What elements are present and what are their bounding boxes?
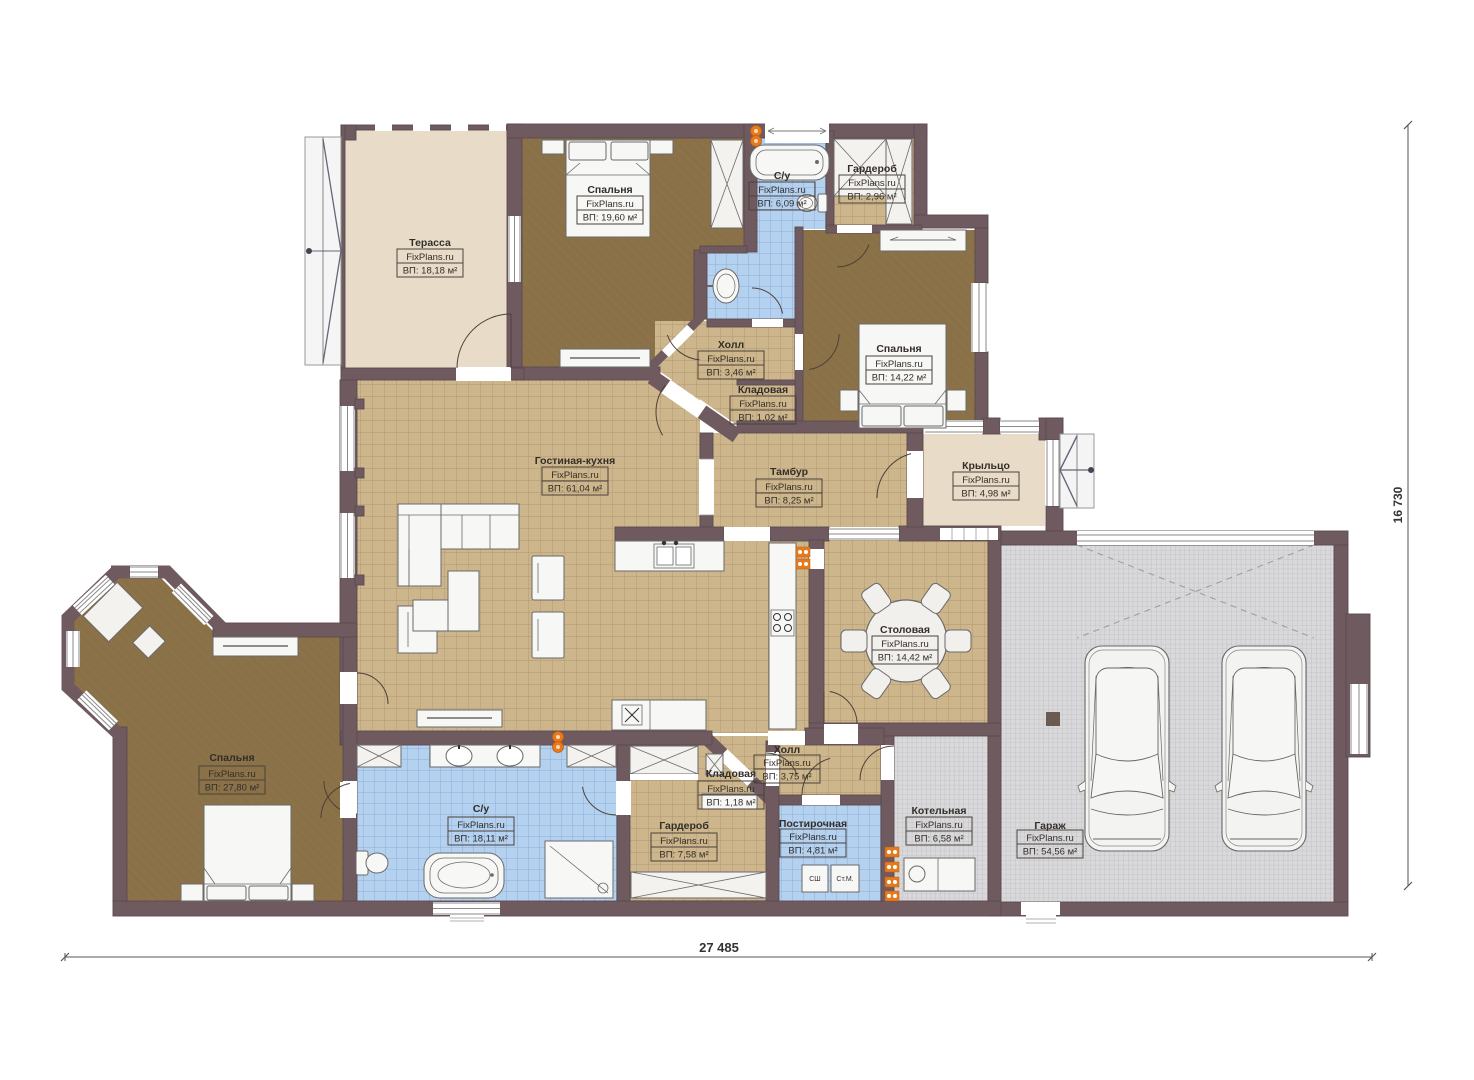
svg-text:Кладовая: Кладовая — [738, 384, 788, 396]
svg-text:ВП: 61,04 м²: ВП: 61,04 м² — [548, 484, 603, 495]
svg-text:ВП: 3,75 м²: ВП: 3,75 м² — [762, 772, 811, 783]
svg-text:ВП: 18,11 м²: ВП: 18,11 м² — [454, 834, 508, 845]
svg-text:FixPlans.ru: FixPlans.ru — [789, 832, 837, 843]
svg-text:СШ: СШ — [809, 876, 820, 883]
svg-text:Кладовая: Кладовая — [706, 768, 756, 780]
svg-text:16 730: 16 730 — [1391, 486, 1405, 523]
svg-text:FixPlans.ru: FixPlans.ru — [881, 639, 929, 650]
svg-text:ВП: 4,81 м²: ВП: 4,81 м² — [788, 846, 837, 857]
svg-text:ВП: 19,60 м²: ВП: 19,60 м² — [583, 213, 638, 224]
svg-text:Столовая: Столовая — [880, 624, 930, 636]
svg-text:FixPlans.ru: FixPlans.ru — [848, 178, 896, 189]
svg-text:Холл: Холл — [774, 744, 800, 756]
svg-text:FixPlans.ru: FixPlans.ru — [707, 784, 755, 795]
svg-text:Ст.М.: Ст.М. — [836, 876, 853, 883]
svg-text:ВП: 18,18 м²: ВП: 18,18 м² — [403, 266, 458, 277]
svg-text:ВП: 27,80 м²: ВП: 27,80 м² — [205, 783, 260, 794]
svg-text:FixPlans.ru: FixPlans.ru — [457, 820, 505, 831]
svg-text:FixPlans.ru: FixPlans.ru — [1026, 833, 1074, 844]
svg-text:FixPlans.ru: FixPlans.ru — [586, 199, 634, 210]
svg-text:Терасса: Терасса — [409, 237, 451, 249]
svg-text:ВП: 7,58 м²: ВП: 7,58 м² — [659, 850, 708, 861]
svg-text:FixPlans.ru: FixPlans.ru — [875, 359, 923, 370]
svg-text:ВП: 14,42 м²: ВП: 14,42 м² — [878, 653, 933, 664]
svg-text:FixPlans.ru: FixPlans.ru — [915, 820, 963, 831]
svg-text:Гардероб: Гардероб — [847, 163, 897, 175]
svg-text:FixPlans.ru: FixPlans.ru — [962, 475, 1010, 486]
svg-text:Крыльцо: Крыльцо — [962, 460, 1010, 472]
svg-text:ВП: 1,02 м²: ВП: 1,02 м² — [738, 413, 787, 424]
svg-text:Постирочная: Постирочная — [779, 818, 847, 830]
svg-text:27 485: 27 485 — [699, 940, 739, 955]
svg-text:FixPlans.ru: FixPlans.ru — [763, 758, 811, 769]
svg-text:Спальня: Спальня — [587, 184, 632, 196]
svg-text:ВП: 54,56 м²: ВП: 54,56 м² — [1023, 847, 1078, 858]
svg-text:Гостиная-кухня: Гостиная-кухня — [535, 455, 615, 467]
svg-text:FixPlans.ru: FixPlans.ru — [660, 836, 708, 847]
svg-text:ВП: 14,22 м²: ВП: 14,22 м² — [872, 373, 927, 384]
svg-text:Гардероб: Гардероб — [659, 820, 709, 832]
svg-text:Котельная: Котельная — [912, 805, 967, 817]
svg-text:С/у: С/у — [473, 803, 490, 815]
svg-text:FixPlans.ru: FixPlans.ru — [758, 185, 806, 196]
svg-text:FixPlans.ru: FixPlans.ru — [551, 470, 599, 481]
svg-text:ВП: 3,46 м²: ВП: 3,46 м² — [706, 368, 755, 379]
svg-text:ВП: 2,96 м²: ВП: 2,96 м² — [847, 192, 896, 203]
svg-text:ВП: 8,25 м²: ВП: 8,25 м² — [764, 496, 813, 507]
svg-text:ВП: 1,18 м²: ВП: 1,18 м² — [706, 798, 755, 809]
svg-text:FixPlans.ru: FixPlans.ru — [739, 399, 787, 410]
svg-text:Спальня: Спальня — [876, 343, 921, 355]
svg-text:Спальня: Спальня — [209, 752, 254, 764]
svg-text:ВП: 6,09 м²: ВП: 6,09 м² — [757, 199, 806, 210]
svg-text:FixPlans.ru: FixPlans.ru — [765, 482, 813, 493]
svg-text:Холл: Холл — [718, 339, 744, 351]
svg-text:FixPlans.ru: FixPlans.ru — [406, 252, 454, 263]
svg-text:С/у: С/у — [774, 170, 791, 182]
svg-text:ВП: 6,58 м²: ВП: 6,58 м² — [914, 834, 963, 845]
svg-text:ВП: 4,98 м²: ВП: 4,98 м² — [961, 489, 1010, 500]
svg-text:FixPlans.ru: FixPlans.ru — [208, 769, 256, 780]
svg-text:Тамбур: Тамбур — [770, 466, 808, 478]
svg-text:FixPlans.ru: FixPlans.ru — [707, 354, 755, 365]
